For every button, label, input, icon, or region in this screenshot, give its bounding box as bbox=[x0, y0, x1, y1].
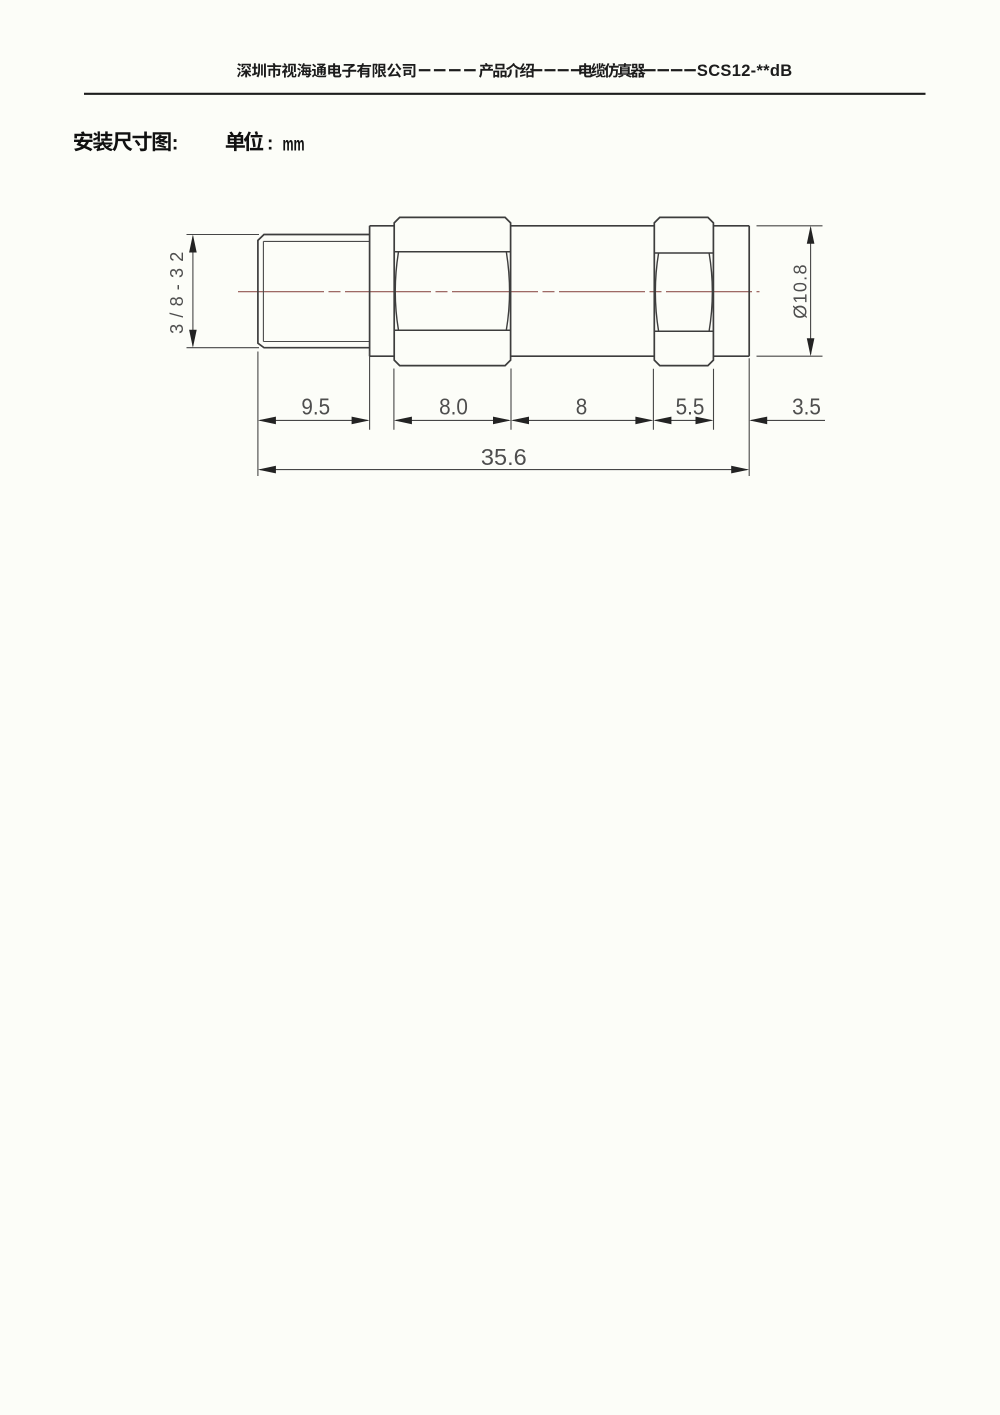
svg-text::: : bbox=[172, 132, 179, 154]
svg-text:mm: mm bbox=[283, 134, 305, 155]
svg-text:3.5: 3.5 bbox=[792, 393, 821, 420]
svg-text::: : bbox=[267, 133, 273, 154]
svg-text:SCS12-**dB: SCS12-**dB bbox=[697, 62, 793, 80]
svg-text:5.5: 5.5 bbox=[676, 393, 705, 420]
svg-text:9.5: 9.5 bbox=[301, 393, 330, 420]
svg-text:8: 8 bbox=[576, 393, 588, 420]
svg-text:3/8-32: 3/8-32 bbox=[167, 246, 187, 334]
svg-text:8.0: 8.0 bbox=[439, 393, 468, 420]
svg-text:35.6: 35.6 bbox=[481, 444, 527, 470]
svg-text:Ø10.8: Ø10.8 bbox=[791, 263, 811, 319]
